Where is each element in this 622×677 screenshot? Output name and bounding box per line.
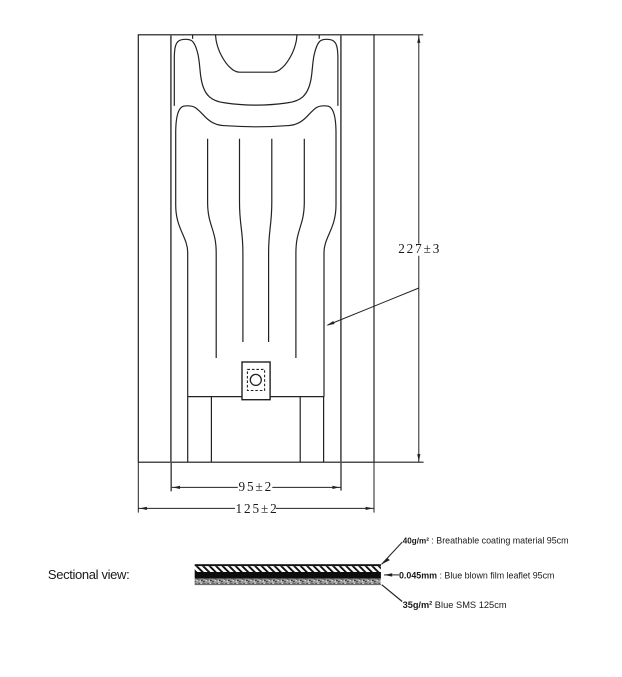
svg-text:227±3: 227±3 <box>398 241 441 256</box>
svg-text:95±2: 95±2 <box>239 479 274 494</box>
svg-text:0.045mm : Blue blown film lea: 0.045mm : Blue blown film leaflet 95cm <box>399 571 554 581</box>
svg-text:40g/m² : Breathable coating ma: 40g/m² : Breathable coating material 95c… <box>403 536 569 546</box>
svg-text:35g/m² Blue SMS 125cm: 35g/m² Blue SMS 125cm <box>403 600 507 610</box>
svg-text:Sectional view:: Sectional view: <box>48 567 129 582</box>
svg-text:125±2: 125±2 <box>236 501 279 516</box>
